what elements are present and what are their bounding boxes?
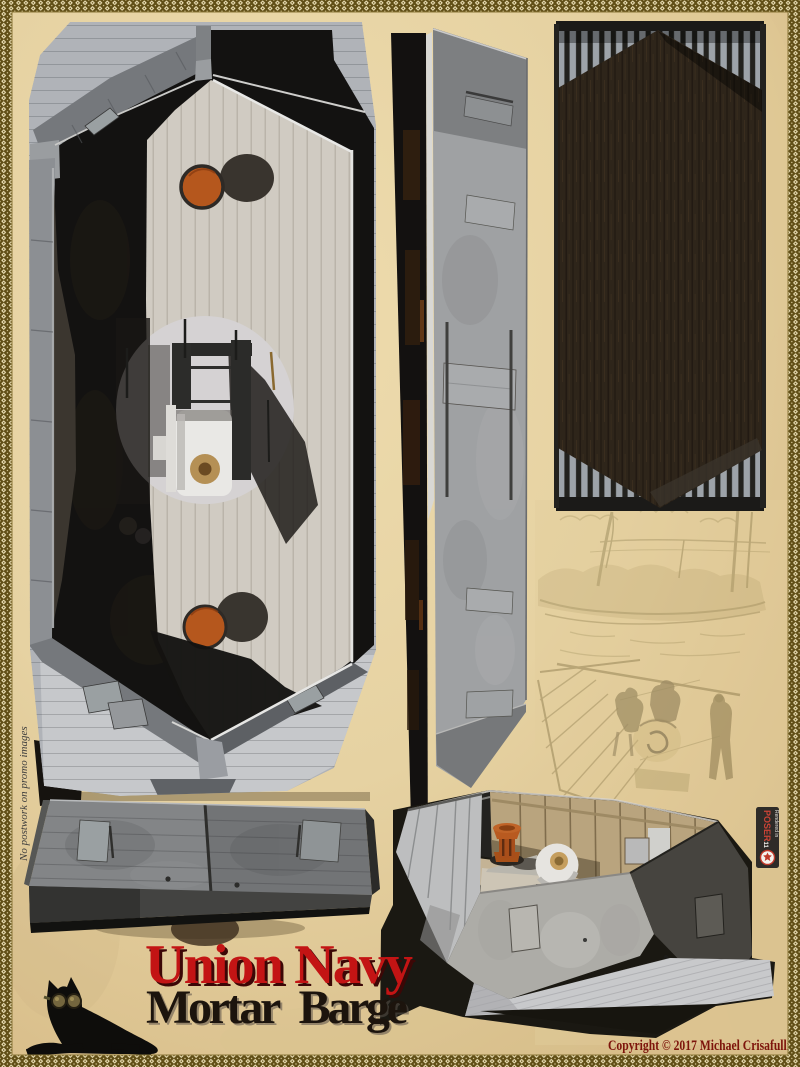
svg-text:Copyright © 2017 Michael Crisa: Copyright © 2017 Michael Crisafulli [608,1038,790,1054]
svg-text:Rendered in: Rendered in [773,810,779,837]
svg-text:Mortar Barge: Mortar Barge [146,981,408,1034]
svg-text:No postwork on promo images: No postwork on promo images [18,726,30,862]
